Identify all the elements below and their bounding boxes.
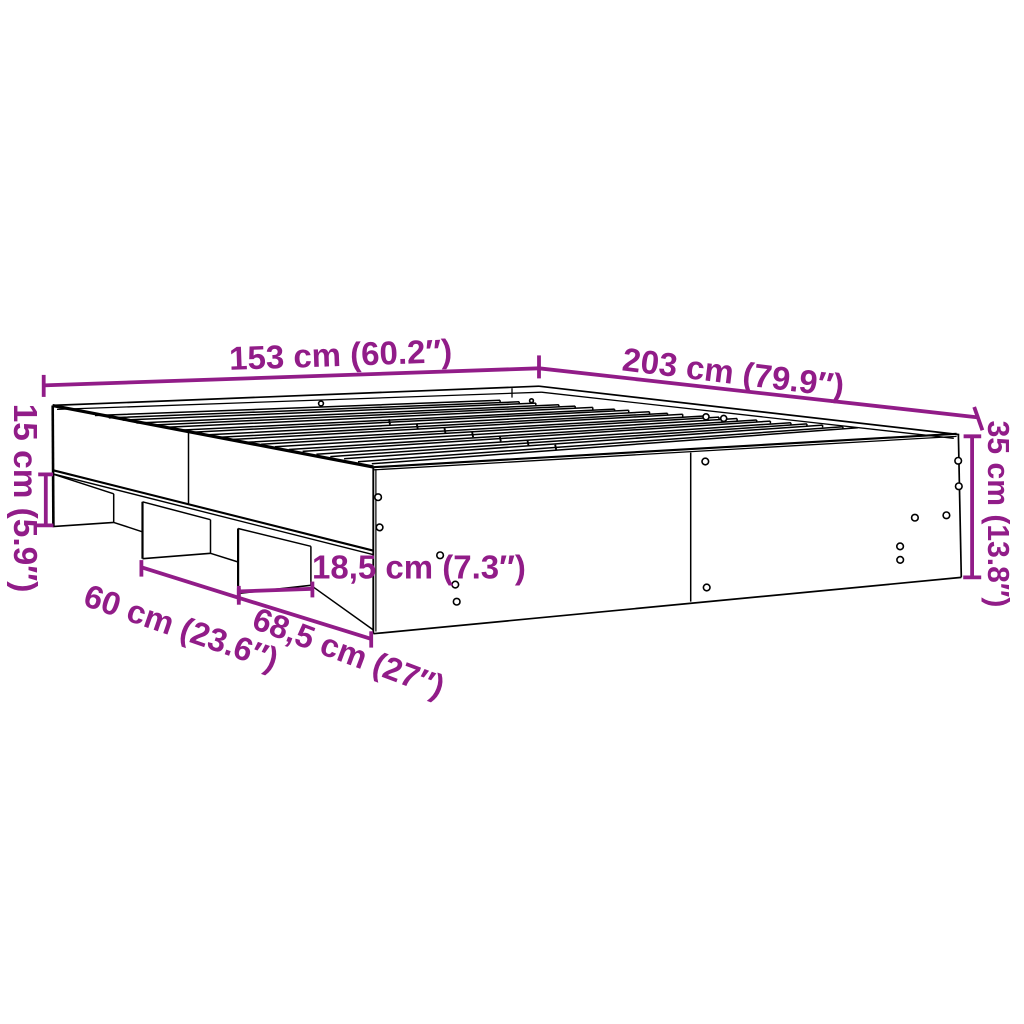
svg-text:153 cm (60.2″): 153 cm (60.2″) (228, 332, 452, 377)
svg-text:15 cm (5.9″): 15 cm (5.9″) (6, 404, 43, 593)
svg-text:18,5 cm (7.3″): 18,5 cm (7.3″) (312, 549, 526, 586)
svg-text:35 cm (13.8″): 35 cm (13.8″) (981, 421, 1014, 608)
